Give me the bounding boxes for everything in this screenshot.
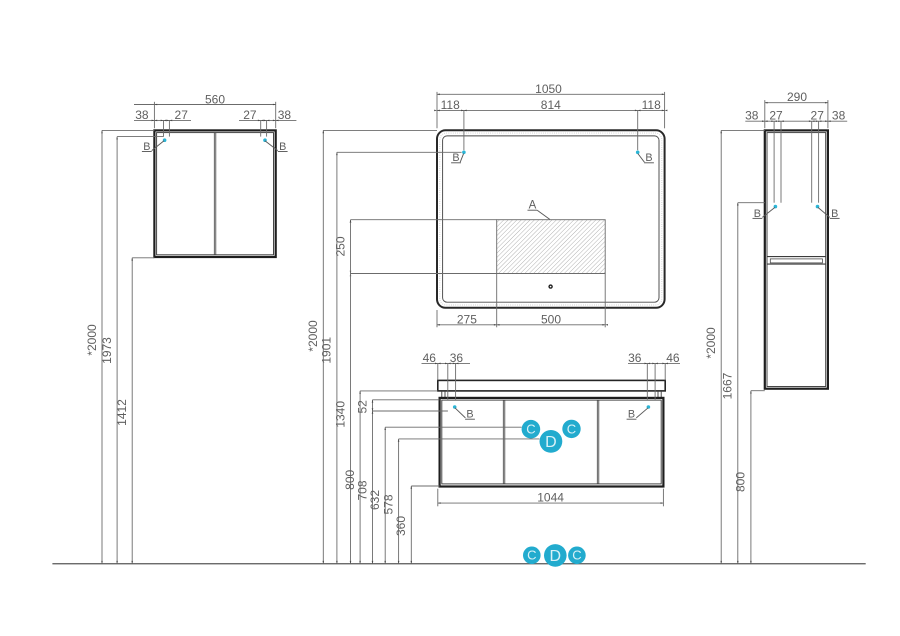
svg-text:C: C: [526, 422, 535, 437]
svg-text:27: 27: [175, 108, 189, 122]
svg-text:118: 118: [642, 98, 661, 112]
svg-text:578: 578: [381, 494, 395, 514]
svg-text:C: C: [567, 421, 576, 436]
svg-text:C: C: [527, 548, 536, 563]
svg-text:290: 290: [787, 90, 807, 104]
svg-text:*2000: *2000: [85, 324, 99, 356]
svg-text:1901: 1901: [320, 337, 334, 364]
svg-text:632: 632: [368, 490, 382, 510]
svg-text:800: 800: [734, 472, 748, 492]
svg-text:36: 36: [628, 351, 642, 365]
svg-text:1412: 1412: [115, 399, 129, 426]
svg-text:814: 814: [541, 98, 561, 112]
svg-text:250: 250: [333, 236, 347, 256]
svg-text:D: D: [545, 434, 557, 451]
svg-text:38: 38: [278, 108, 292, 122]
svg-text:*2000: *2000: [306, 320, 320, 352]
svg-text:1340: 1340: [333, 401, 347, 428]
svg-text:46: 46: [423, 351, 437, 365]
svg-text:27: 27: [243, 108, 257, 122]
svg-text:1973: 1973: [100, 337, 114, 364]
svg-text:1044: 1044: [537, 491, 564, 505]
svg-text:D: D: [550, 548, 562, 565]
svg-text:36: 36: [450, 351, 464, 365]
svg-text:C: C: [572, 548, 581, 563]
svg-text:500: 500: [541, 312, 561, 326]
svg-text:118: 118: [441, 98, 460, 112]
svg-text:*2000: *2000: [704, 327, 718, 359]
svg-text:560: 560: [205, 93, 225, 107]
svg-text:38: 38: [135, 108, 149, 122]
svg-text:38: 38: [745, 109, 759, 123]
svg-text:1050: 1050: [535, 82, 562, 96]
svg-text:27: 27: [769, 109, 783, 123]
svg-text:52: 52: [355, 400, 369, 414]
svg-text:46: 46: [666, 351, 680, 365]
svg-text:360: 360: [394, 516, 408, 536]
svg-text:275: 275: [457, 312, 477, 326]
svg-text:38: 38: [832, 109, 846, 123]
svg-text:27: 27: [811, 109, 825, 123]
svg-text:1667: 1667: [721, 372, 735, 399]
